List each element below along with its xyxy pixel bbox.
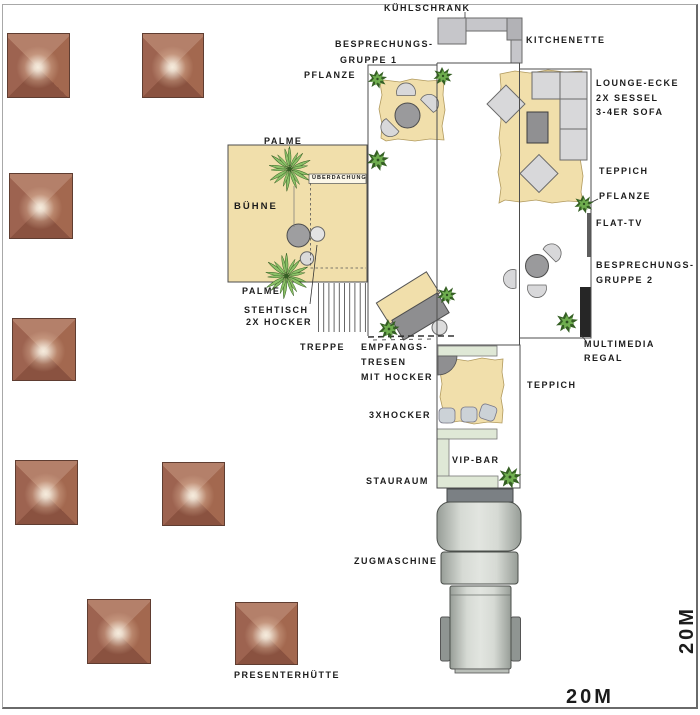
chair	[503, 270, 516, 289]
storage-block	[447, 489, 513, 502]
coffee-table	[527, 112, 548, 143]
tractor-mid	[441, 552, 518, 584]
open-edge-dashes	[368, 336, 456, 337]
plant-icon	[556, 312, 578, 333]
chair	[528, 285, 547, 298]
canopy-label-box	[309, 174, 366, 184]
reception-stool	[432, 320, 447, 335]
flat-tv	[587, 213, 591, 257]
stool	[310, 227, 324, 241]
tractor-cab	[450, 586, 511, 669]
stairs	[319, 283, 366, 332]
vip-bar-counter	[437, 429, 498, 488]
kitchen-counter-left	[438, 18, 466, 44]
meeting-table-2	[526, 255, 549, 278]
tractor-wheel	[511, 617, 521, 661]
tractor-bumper	[455, 669, 509, 673]
bar-stool	[461, 407, 477, 422]
stool	[300, 252, 313, 265]
plant-icon	[499, 466, 522, 488]
meeting-table-1	[395, 103, 420, 128]
open-edge-dashes	[373, 339, 433, 340]
bar-stool	[439, 408, 455, 423]
standing-table	[287, 224, 310, 247]
plan-graphics	[0, 0, 700, 715]
tractor-gooseneck	[437, 502, 521, 551]
floor-plan: KÜHLSCHRANK KITCHENETTE BESPRECHUNGS- GR…	[0, 0, 700, 715]
plant-icon	[367, 150, 389, 171]
tractor-wheel	[441, 617, 451, 661]
kitchen-counter-column	[511, 40, 522, 63]
fridge	[507, 18, 522, 40]
multimedia-shelf	[580, 287, 591, 337]
vip-counter-top	[438, 346, 497, 356]
